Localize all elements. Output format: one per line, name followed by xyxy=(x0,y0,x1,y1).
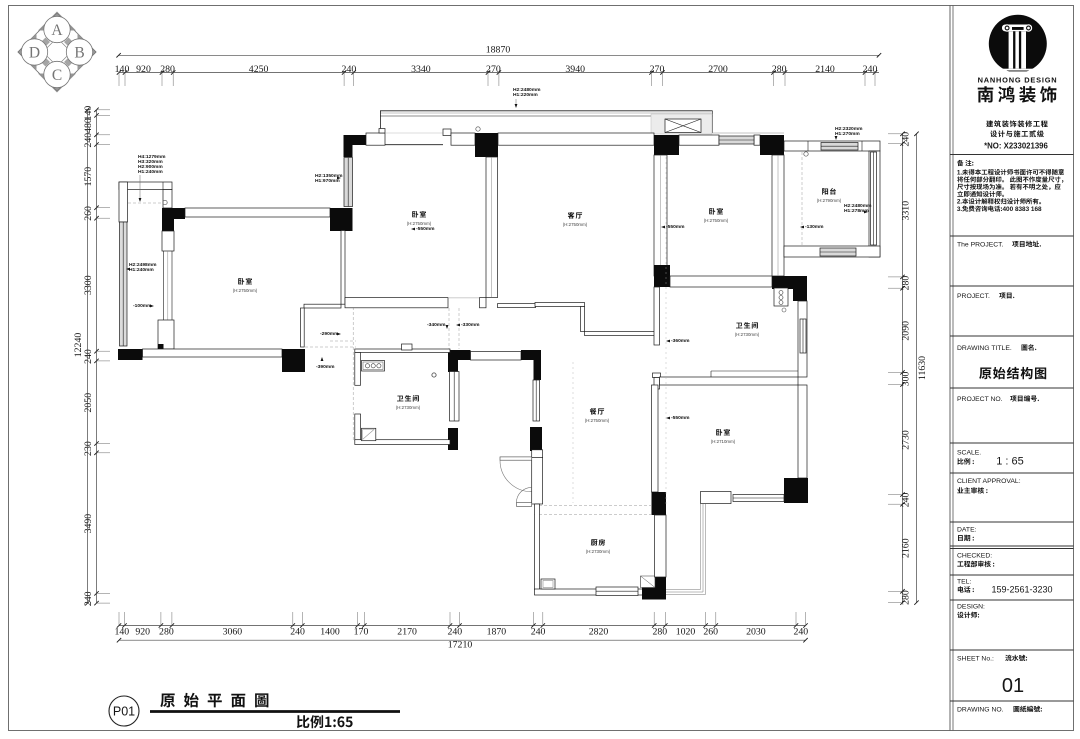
svg-text:280: 280 xyxy=(160,64,175,75)
svg-text:H1:220mm: H1:220mm xyxy=(513,92,538,98)
svg-text:1400: 1400 xyxy=(320,627,340,638)
svg-text:B: B xyxy=(74,45,84,62)
svg-text:(H:2730mm): (H:2730mm) xyxy=(396,405,421,410)
svg-text:DRAWING NO.: DRAWING NO. xyxy=(957,707,1004,714)
svg-text:260: 260 xyxy=(83,206,94,221)
svg-text:TEL:: TEL: xyxy=(957,579,971,586)
svg-text:(H:2750mm): (H:2750mm) xyxy=(407,221,432,226)
svg-text:240: 240 xyxy=(901,492,912,507)
svg-text:(H:2710mm): (H:2710mm) xyxy=(711,439,736,444)
svg-text:12240: 12240 xyxy=(73,333,84,358)
svg-text:01: 01 xyxy=(1002,675,1024,697)
svg-text:140: 140 xyxy=(115,64,130,75)
svg-text:DATE:: DATE: xyxy=(957,527,977,534)
svg-text:240: 240 xyxy=(447,627,462,638)
svg-text:240: 240 xyxy=(531,627,546,638)
svg-text:240: 240 xyxy=(290,627,305,638)
svg-text:CLIENT APPROVAL:: CLIENT APPROVAL: xyxy=(957,478,1021,485)
svg-text:(H:2750mm): (H:2750mm) xyxy=(563,222,588,227)
svg-text:NANHONG DESIGN: NANHONG DESIGN xyxy=(978,76,1058,85)
svg-text:H1:240mm: H1:240mm xyxy=(138,169,163,175)
svg-text:2820: 2820 xyxy=(589,627,609,638)
svg-text:2030: 2030 xyxy=(746,627,766,638)
svg-text:-360mm: -360mm xyxy=(671,338,690,344)
svg-text:1020: 1020 xyxy=(676,627,696,638)
svg-text:3.: 3. xyxy=(957,206,963,213)
svg-text:159-2561-3230: 159-2561-3230 xyxy=(991,585,1052,595)
svg-text:280: 280 xyxy=(772,64,787,75)
svg-text:-550mm: -550mm xyxy=(666,224,685,230)
svg-text:170: 170 xyxy=(354,627,369,638)
svg-text:240: 240 xyxy=(83,349,94,364)
svg-text:2140: 2140 xyxy=(815,64,835,75)
svg-text:230: 230 xyxy=(83,441,94,456)
svg-text:(H:2790mm): (H:2790mm) xyxy=(817,198,842,203)
svg-text:270: 270 xyxy=(486,64,501,75)
svg-text:920: 920 xyxy=(135,627,150,638)
svg-text:11630: 11630 xyxy=(917,356,928,380)
svg-text:280: 280 xyxy=(652,627,667,638)
svg-text:2170: 2170 xyxy=(397,627,417,638)
svg-text:1 : 65: 1 : 65 xyxy=(996,456,1024,468)
svg-text:240: 240 xyxy=(83,591,94,606)
svg-text:H1:278mm: H1:278mm xyxy=(844,208,869,214)
svg-text:PROJECT.: PROJECT. xyxy=(957,293,990,300)
svg-text:2050: 2050 xyxy=(83,393,94,413)
svg-text:DESIGN:: DESIGN: xyxy=(957,604,985,611)
svg-text:3940: 3940 xyxy=(565,64,585,75)
svg-text:C: C xyxy=(52,67,62,84)
svg-text:H1:240mm: H1:240mm xyxy=(129,267,154,273)
svg-text:3060: 3060 xyxy=(223,627,243,638)
svg-text:140: 140 xyxy=(114,627,129,638)
svg-text:D: D xyxy=(29,45,40,62)
svg-text:280: 280 xyxy=(901,590,912,605)
svg-text:(H:2730mm): (H:2730mm) xyxy=(586,549,611,554)
svg-text:-100mm: -100mm xyxy=(133,303,152,309)
svg-text:(H:2730mm): (H:2730mm) xyxy=(735,332,760,337)
svg-text:1870: 1870 xyxy=(487,627,507,638)
svg-text:-290mm: -290mm xyxy=(320,331,339,337)
svg-text:The PROJECT.: The PROJECT. xyxy=(957,242,1004,249)
svg-text:300: 300 xyxy=(901,371,912,386)
svg-text:920: 920 xyxy=(136,64,151,75)
svg-text:*NO: X233021396: *NO: X233021396 xyxy=(984,142,1048,151)
svg-text:-550mm: -550mm xyxy=(671,415,690,421)
svg-text:-340mm: -340mm xyxy=(427,322,446,328)
svg-text:3300: 3300 xyxy=(83,275,94,295)
svg-text:18870: 18870 xyxy=(486,45,511,56)
svg-text:17210: 17210 xyxy=(448,640,473,651)
svg-text:-390mm: -390mm xyxy=(316,364,335,370)
svg-text:P01: P01 xyxy=(113,705,135,719)
svg-text:(H:2750mm): (H:2750mm) xyxy=(704,218,729,223)
svg-text:280: 280 xyxy=(159,627,174,638)
svg-text:PROJECT NO.: PROJECT NO. xyxy=(957,396,1003,403)
svg-text:240: 240 xyxy=(793,627,808,638)
svg-text:1.: 1. xyxy=(957,170,963,177)
svg-text:240: 240 xyxy=(863,64,878,75)
svg-text:CHECKED:: CHECKED: xyxy=(957,553,992,560)
svg-text:4250: 4250 xyxy=(249,64,269,75)
svg-text:240: 240 xyxy=(901,132,912,147)
svg-text:280: 280 xyxy=(901,276,912,291)
svg-text:SHEET No.:: SHEET No.: xyxy=(957,656,994,663)
svg-text:H1:270mm: H1:270mm xyxy=(835,131,860,137)
svg-text:2700: 2700 xyxy=(708,64,728,75)
svg-text:3490: 3490 xyxy=(83,514,94,534)
svg-text:260: 260 xyxy=(703,627,718,638)
svg-text:240: 240 xyxy=(83,133,94,148)
svg-text:3310: 3310 xyxy=(901,201,912,221)
svg-text:400 8383 168: 400 8383 168 xyxy=(1003,206,1043,213)
svg-text:SCALE.: SCALE. xyxy=(957,450,981,457)
svg-text:3340: 3340 xyxy=(411,64,431,75)
svg-text:-130mm: -130mm xyxy=(805,224,824,230)
svg-text:1570: 1570 xyxy=(83,167,94,187)
svg-text:240: 240 xyxy=(342,64,357,75)
svg-text:480: 480 xyxy=(83,118,94,133)
svg-text:270: 270 xyxy=(650,64,665,75)
svg-text:140: 140 xyxy=(83,106,94,121)
svg-text:(H:2750mm): (H:2750mm) xyxy=(585,418,610,423)
svg-text:A: A xyxy=(51,22,63,39)
svg-text:-550mm: -550mm xyxy=(416,226,435,232)
svg-text:2.: 2. xyxy=(957,199,963,206)
svg-text:2090: 2090 xyxy=(901,321,912,341)
svg-text:2160: 2160 xyxy=(901,538,912,558)
svg-text:DRAWING TITLE.: DRAWING TITLE. xyxy=(957,345,1012,352)
svg-text:H1:970mm: H1:970mm xyxy=(315,178,340,184)
svg-text:-330mm: -330mm xyxy=(461,322,480,328)
svg-text:(H:2750mm): (H:2750mm) xyxy=(233,288,258,293)
svg-text:2730: 2730 xyxy=(901,430,912,450)
